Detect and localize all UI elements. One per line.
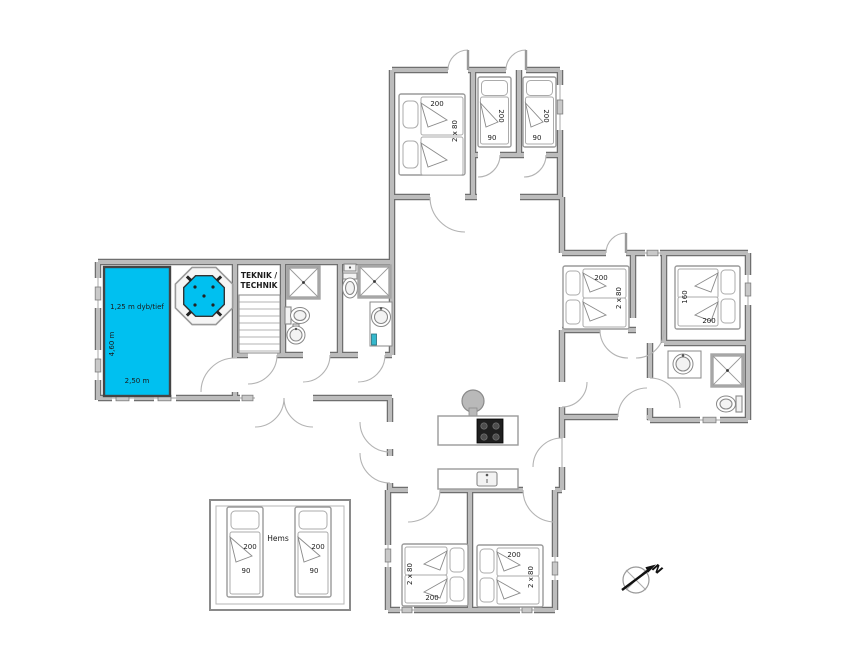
technical-room: TEKNIK / TECHNIK [239,271,280,353]
pillow [480,549,494,573]
bed-length-label: 200 [594,274,607,282]
pillow [450,577,464,601]
pool-depth-label: 1,25 m dyb/tief [110,303,164,311]
bed-width-label: 90 [310,567,319,575]
bed-east-double: 200 2 x 80 [563,266,629,329]
window-icon [703,417,716,423]
kitchen-sink [477,472,497,486]
bed-north-single-left: 200 90 [478,77,511,147]
bed-width-label: 2 x 80 [615,287,623,309]
bed-width-label: 2 x 80 [451,120,459,142]
kitchen [438,390,518,489]
teknik-label-line1: TEKNIK / [241,271,278,280]
bed-length-label: 200 [243,543,256,551]
bed-north-double: 200 2 x 80 [399,94,465,175]
bed-width-label: 90 [242,567,251,575]
pool-width-label: 2,50 m [125,377,150,385]
sink [287,324,305,344]
pillow [403,141,418,168]
bed-width-label: 2 x 80 [406,563,414,585]
pillow [403,101,418,128]
teknik-label-line2: TECHNIK [241,281,279,290]
bathroom-west-2 [343,264,393,346]
bed-length-label: 200 [430,100,443,108]
window-icon [522,607,532,613]
bed-width-label: 2 x 80 [527,566,535,588]
bed-north-single-right: 200 90 [523,77,556,147]
bed-width-label: 90 [533,134,542,142]
window-icon [552,562,558,575]
window-icon [557,100,563,114]
pillow [480,578,494,602]
staircase [239,295,280,353]
bed-width-label: 160 [681,290,689,303]
window-icon [745,283,751,296]
hand-basin [344,264,356,271]
bed-south-right: 200 2 x 80 [477,545,543,607]
bed-length-label: 200 [497,109,505,122]
bed-length-label: 200 [702,317,715,325]
pool-length-label: 4,60 m [108,332,116,357]
floor-plan-page: 1,25 m dyb/tief 4,60 m 2,50 m TEKNIK / T… [0,0,867,667]
hot-tub [175,267,232,324]
toilet [717,396,743,412]
window-icon [647,250,658,256]
compass-north-label: N [650,561,665,577]
toilet [285,307,310,324]
floor-plan: 1,25 m dyb/tief 4,60 m 2,50 m TEKNIK / T… [0,0,867,667]
bathroom-west-1 [285,267,319,344]
bed-length-label: 200 [507,551,520,559]
toilet [343,273,358,298]
vanity-sink [370,302,392,346]
bed-east-master: 160 200 [675,266,740,329]
hems-room: Hems 200 90 200 90 [210,500,350,610]
stove [477,419,503,443]
pillow [721,299,735,323]
pillow [231,511,259,529]
pillow [721,270,735,294]
bed-length-label: 200 [542,109,550,122]
pool-room: 1,25 m dyb/tief 4,60 m 2,50 m [104,267,233,396]
hems-bed-right: 200 90 [295,507,331,597]
window-icon [385,549,391,562]
shower [359,266,390,297]
pillow [566,300,580,324]
pillow [299,511,327,529]
pillow [450,548,464,572]
bed-length-label: 200 [311,543,324,551]
hems-label: Hems [267,534,289,543]
shower [712,355,743,386]
pillow [566,271,580,295]
hems-bed-left: 200 90 [227,507,263,597]
compass: N [622,561,665,593]
bed-south-left: 2 x 80 200 [402,544,468,606]
bed-length-label: 200 [425,594,438,602]
window-icon [402,607,412,613]
window-icon [242,395,253,401]
bath-accessory [372,334,377,345]
pillow [527,81,553,96]
bed-width-label: 90 [488,134,497,142]
vanity-sink [668,351,701,378]
shower [288,267,319,298]
window-icon [95,359,101,372]
pillow [482,81,508,96]
window-icon [95,287,101,300]
